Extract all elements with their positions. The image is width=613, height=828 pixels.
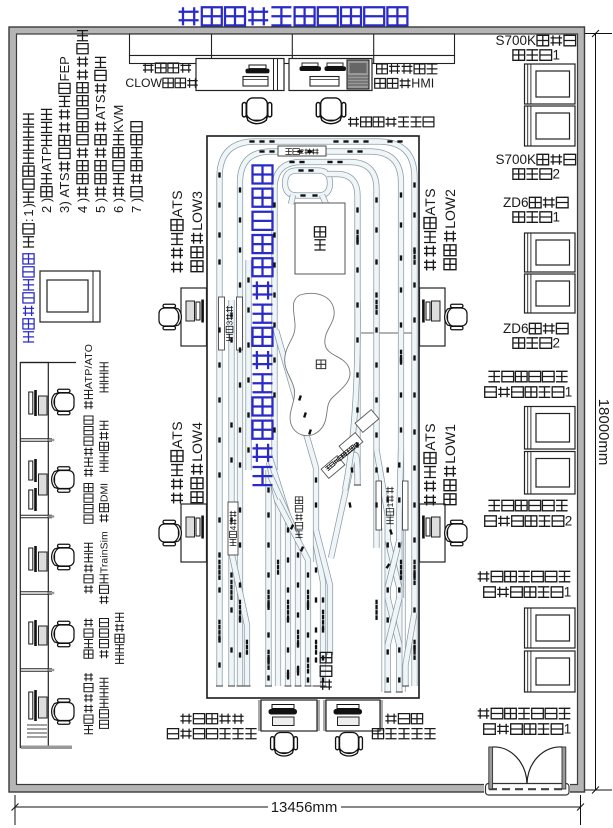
- svg-text:ATS: ATS: [169, 190, 185, 217]
- svg-text:FEP: FEP: [57, 56, 72, 81]
- svg-text:HMI: HMI: [411, 77, 434, 91]
- svg-text:ZD6: ZD6: [503, 321, 529, 336]
- svg-text:ATP/ATO: ATP/ATO: [83, 344, 95, 389]
- svg-text:1: 1: [564, 722, 572, 737]
- svg-text:18000mm: 18000mm: [595, 399, 612, 466]
- svg-text:1: 1: [565, 385, 573, 400]
- svg-text:LOW3: LOW3: [189, 191, 205, 231]
- svg-text:3) ATS: 3) ATS: [57, 172, 72, 213]
- svg-text::1): :1): [21, 203, 36, 222]
- svg-text:2: 2: [553, 336, 561, 351]
- svg-text:CLOW: CLOW: [125, 76, 162, 90]
- svg-text:LOW2: LOW2: [442, 189, 458, 229]
- svg-text:KVM: KVM: [111, 105, 126, 133]
- svg-text:13456mm: 13456mm: [271, 799, 338, 816]
- svg-text:S700K: S700K: [496, 33, 537, 48]
- svg-text:1: 1: [553, 210, 561, 225]
- svg-text:ATP: ATP: [39, 147, 54, 172]
- svg-text:1: 1: [564, 585, 572, 600]
- svg-text:1: 1: [553, 48, 561, 63]
- svg-text:TrainSim: TrainSim: [99, 531, 111, 573]
- svg-text:ZD6: ZD6: [503, 195, 529, 210]
- svg-text:S700K: S700K: [496, 152, 537, 167]
- svg-text:DMI: DMI: [99, 483, 111, 502]
- svg-text:2: 2: [553, 167, 561, 182]
- svg-text:ATS: ATS: [422, 423, 438, 450]
- svg-text:2: 2: [565, 514, 573, 529]
- svg-text:3: 3: [225, 320, 234, 325]
- svg-text:LOW4: LOW4: [189, 422, 205, 462]
- svg-text:1: 1: [385, 502, 395, 507]
- svg-text:ATS: ATS: [93, 94, 108, 120]
- svg-text:ATS: ATS: [169, 421, 185, 448]
- svg-text:4: 4: [229, 525, 238, 530]
- svg-text:ATS: ATS: [422, 188, 438, 215]
- svg-text:LOW1: LOW1: [442, 424, 458, 464]
